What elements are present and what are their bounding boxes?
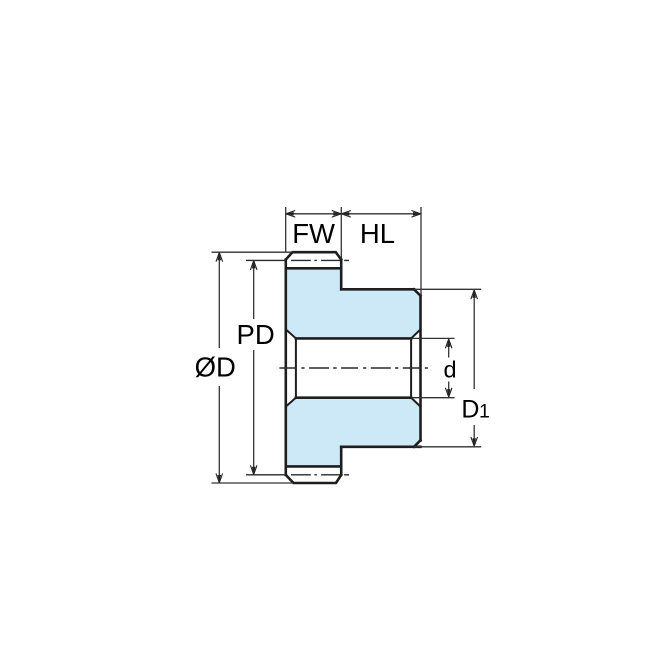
svg-text:HL: HL bbox=[360, 218, 395, 249]
svg-text:FW: FW bbox=[292, 218, 335, 249]
svg-text:ØD: ØD bbox=[195, 352, 236, 383]
svg-text:PD: PD bbox=[236, 319, 274, 350]
svg-text:D1: D1 bbox=[461, 395, 489, 423]
svg-text:d: d bbox=[443, 357, 456, 383]
